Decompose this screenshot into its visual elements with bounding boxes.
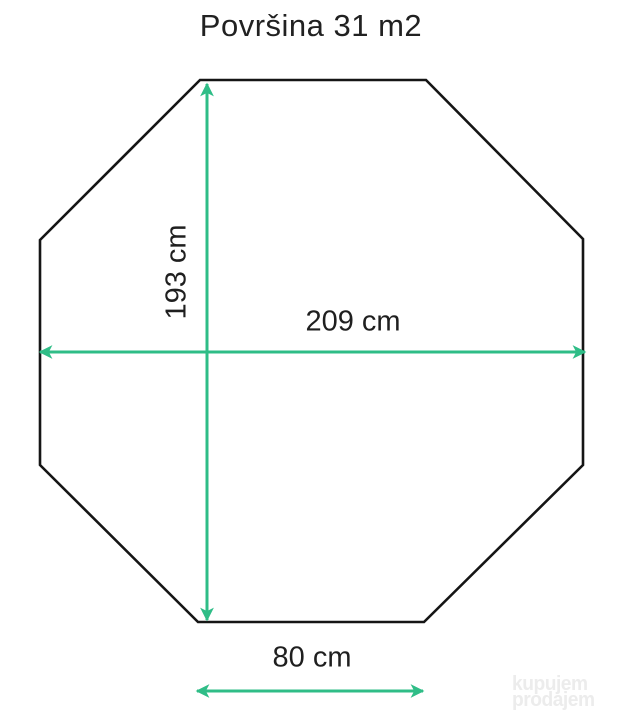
diagram-page: Površina 31 m2 193 cm 209 cm 80 cm kupuj… (0, 0, 622, 721)
height-dimension-label: 193 cm (161, 224, 194, 319)
diagram-canvas (0, 0, 622, 721)
width-dimension-label: 209 cm (305, 306, 400, 339)
kupujemprodajem-watermark: kupujem prodajem (512, 676, 595, 708)
watermark-line-2: prodajem (512, 692, 595, 708)
page-title: Površina 31 m2 (0, 8, 622, 44)
base-dimension-label: 80 cm (273, 642, 352, 675)
